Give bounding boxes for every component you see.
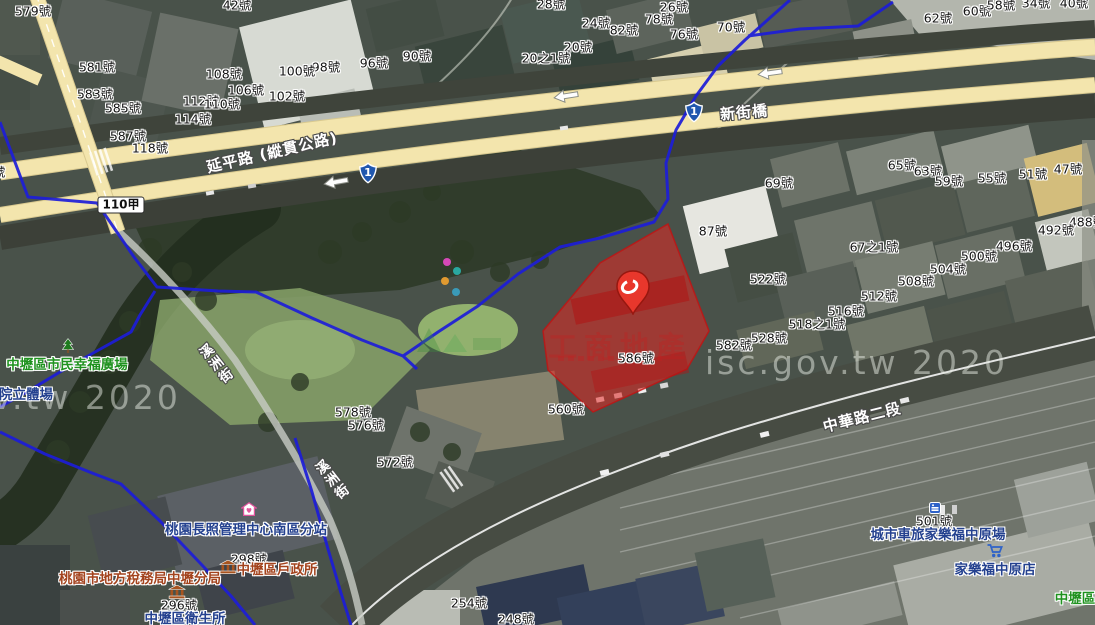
map-canvas[interactable]: v.tw 2020 isc.gov.tw 2020 工商地產 579號42號28…	[0, 0, 1095, 625]
aerial-background	[0, 0, 1095, 625]
watermark-logo	[415, 326, 505, 356]
route-badge: 110甲	[97, 197, 144, 214]
watermark-smallprint	[558, 356, 662, 361]
